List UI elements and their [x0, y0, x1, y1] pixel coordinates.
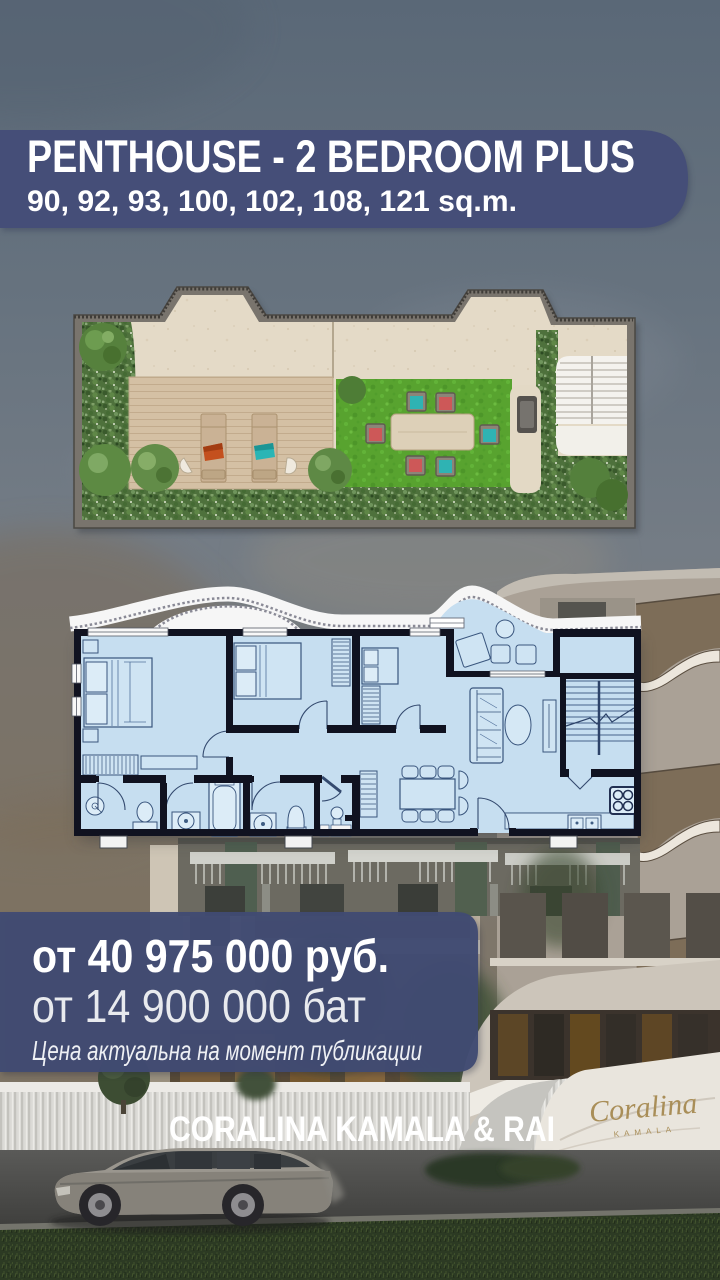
svg-text:90, 92, 93, 100, 102, 108, 121: 90, 92, 93, 100, 102, 108, 121 sq.m. — [27, 185, 517, 218]
svg-text:PENTHOUSE - 2 BEDROOM PLUS: PENTHOUSE - 2 BEDROOM PLUS — [27, 131, 635, 182]
svg-text:от 14 900 000 бат: от 14 900 000 бат — [32, 980, 366, 1032]
svg-text:CORALINA KAMALA & RAI: CORALINA KAMALA & RAI — [169, 1110, 555, 1149]
svg-text:Цена актуальна на момент публи: Цена актуальна на момент публикации — [32, 1035, 422, 1066]
svg-text:от 40 975 000 руб.: от 40 975 000 руб. — [32, 930, 389, 982]
